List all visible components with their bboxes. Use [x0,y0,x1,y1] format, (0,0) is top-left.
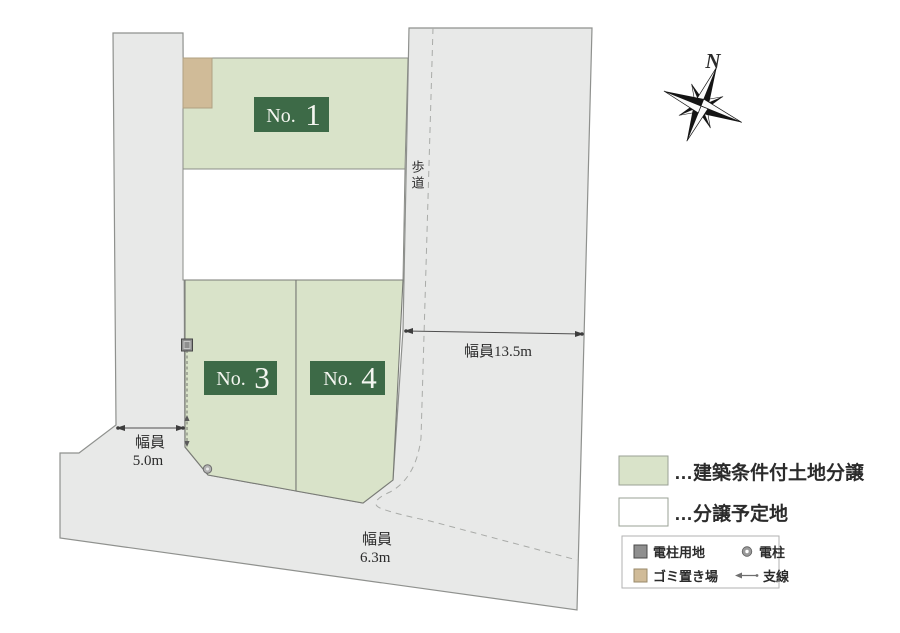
plot-1-label-number: 1 [305,97,321,132]
legend-symbol-box: 電柱用地 電柱 ゴミ置き場 支線 [622,536,790,588]
plot-1-badge: No. 1 [254,97,329,132]
utility-pole-icon [203,465,211,473]
legend-pole-site-icon [634,545,647,558]
road-width-bottom-label-line1: 幅員 [362,531,392,548]
legend-pole-label: 電柱 [759,545,785,560]
legend-garbage-icon [634,569,647,582]
utility-pole-site-icon [182,339,193,351]
plot-4-label-prefix: No. [323,368,352,390]
plot-3-label-prefix: No. [216,368,245,390]
compass-north-label: N [704,49,721,73]
legend: …建築条件付土地分譲 …分譲予定地 電柱用地 電柱 ゴミ置き場 支線 [619,456,865,588]
plot-1-label-prefix: No. [266,105,295,127]
road-width-left-label-line2: 5.0m [133,453,164,469]
road-width-left-label-line1: 幅員 [135,434,165,451]
plot-3-badge: No. 3 [204,360,277,395]
garbage-area-box [183,58,212,108]
legend-guy-wire-label: 支線 [762,569,790,584]
plot-4-badge: No. 4 [310,360,385,395]
site-plan-svg: No. 1 No. 3 No. 4 幅員13.5m [0,0,900,633]
legend-garbage-label: ゴミ置き場 [653,569,718,584]
legend-green-label: …建築条件付土地分譲 [674,461,865,484]
legend-white-swatch [619,498,668,526]
road-width-right-label: 幅員13.5m [464,343,532,360]
legend-pole-site-label: 電柱用地 [653,545,705,560]
compass-rose-icon: N [650,49,758,158]
legend-white-label: …分譲予定地 [674,502,788,525]
plot-3-label-number: 3 [254,360,270,395]
legend-pole-icon [742,547,752,557]
planned-lot-area [183,169,405,280]
road-width-bottom-label-line2: 6.3m [360,550,391,566]
site-plan-canvas: No. 1 No. 3 No. 4 幅員13.5m [0,0,900,633]
plot-4-label-number: 4 [361,360,377,395]
sidewalk-label: 歩道 [410,160,425,192]
legend-green-swatch [619,456,668,485]
